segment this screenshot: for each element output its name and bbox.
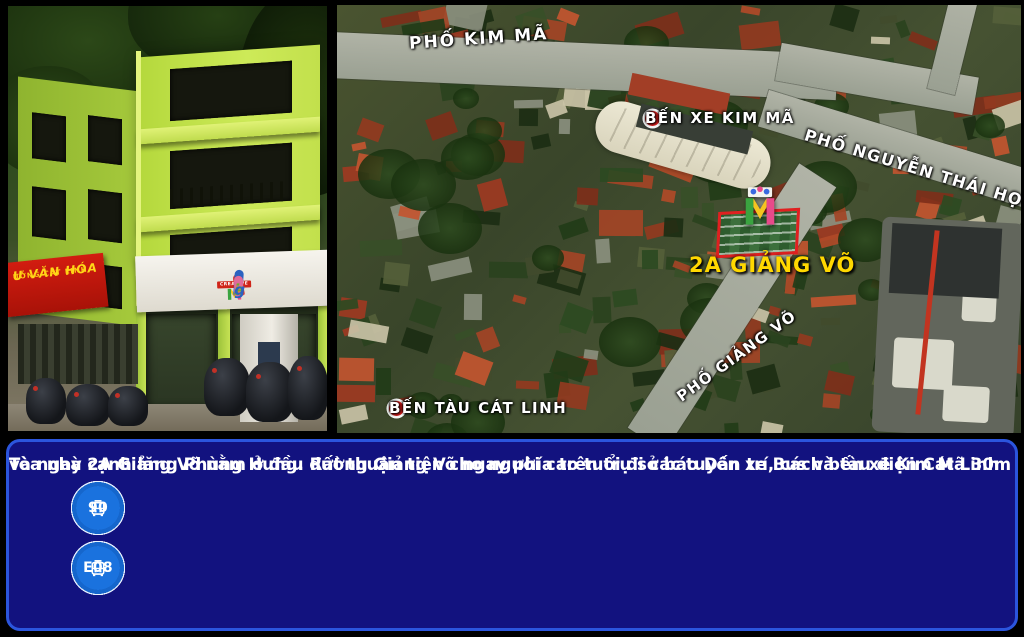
bus-route-number: 90 [88, 501, 108, 516]
map-texture-patch [376, 368, 391, 395]
map-texture-patch [339, 358, 374, 382]
map-texture-patch [600, 168, 643, 182]
map-texture-patch [512, 294, 526, 304]
window [170, 61, 292, 122]
satellite-map: PHỐ KIM MÃ BẾN XE KIM MÃ PHỐ NGUYỄN THÁI… [337, 5, 1021, 433]
motorbike [288, 356, 327, 420]
station-label-text: BẾN TÀU CÁT LINH [389, 399, 567, 417]
map-texture-patch [531, 133, 552, 150]
map-texture-patch [592, 297, 611, 324]
map-texture-patch [824, 370, 855, 396]
window [32, 112, 66, 162]
map-texture-patch [427, 257, 472, 282]
zigzag-letter: g [234, 281, 245, 299]
motorbike [204, 358, 250, 416]
motorbike [26, 378, 66, 424]
map-texture-patch [559, 119, 570, 134]
creative-logo-marker [738, 185, 782, 229]
red-street-sign: Ư VĂN HÓA ƯỜNG CÁT LINH [8, 253, 109, 317]
station-label-text: BẾN XE KIM MÃ [645, 109, 795, 127]
map-texture-patch [360, 239, 403, 257]
map-texture-patch [357, 118, 385, 143]
kim-ma-bus-station-label: BẾN XE KIM MÃ [645, 109, 795, 127]
map-texture-patch [408, 298, 441, 328]
map-tree-blob [532, 245, 564, 271]
map-texture-patch [545, 99, 567, 119]
cat-linh-station-label: BẾN TÀU CÁT LINH [389, 399, 567, 417]
map-texture-patch [992, 6, 1021, 27]
map-texture-patch [811, 294, 857, 307]
map-texture-patch [337, 385, 375, 402]
map-texture-patch [797, 333, 814, 347]
map-texture-patch [489, 261, 528, 278]
map-texture-patch [425, 111, 458, 140]
building-photo: Ư VĂN HÓA ƯỜNG CÁT LINH CREATIVE zigzag [8, 6, 327, 431]
map-texture-patch [348, 320, 389, 344]
map-texture-patch [518, 109, 537, 126]
map-texture-patch [822, 393, 840, 409]
balcony [138, 205, 320, 233]
map-texture-patch [584, 349, 599, 359]
motorbike [246, 362, 294, 422]
map-tree-blob [453, 88, 479, 109]
map-texture-patch [464, 294, 482, 320]
map-texture-patch [829, 5, 859, 32]
info-panel: Tòa nhà 2A Giảng Võ nằm ở đầu đường Giản… [6, 439, 1018, 631]
map-texture-patch [515, 380, 539, 389]
bus-route-badge-e08: E08 [71, 541, 125, 595]
window [88, 115, 122, 165]
map-texture-patch [908, 31, 938, 51]
map-texture-patch [595, 239, 611, 264]
map-tree-blob [975, 114, 1006, 139]
map-texture-patch [681, 187, 699, 208]
description-line-2: và ngay cạnh lăng Phùng Hưng. Rất thuận … [9, 452, 999, 477]
map-tree-blob [599, 317, 661, 367]
window [88, 189, 122, 243]
creative-m-icon [738, 185, 782, 229]
map-texture-patch [599, 210, 643, 236]
map-texture-patch [383, 262, 411, 287]
map-texture-patch [514, 99, 543, 108]
iron-fence [18, 324, 138, 384]
construction-site [871, 216, 1021, 433]
map-texture-patch [724, 422, 739, 433]
address-label: 2A GIẢNG VÕ [689, 253, 855, 277]
map-texture-patch [339, 404, 369, 424]
window [32, 186, 66, 240]
construction-dark-roof [889, 223, 1003, 299]
map-texture-patch [476, 327, 500, 353]
map-texture-patch [477, 178, 508, 211]
map-texture-patch [741, 5, 761, 16]
map-texture-patch [739, 20, 782, 50]
map-texture-patch [661, 189, 676, 203]
balcony [138, 117, 320, 145]
map-texture-patch [759, 421, 783, 433]
map-texture-patch [576, 188, 598, 206]
bus-route-number: E08 [83, 561, 113, 576]
description-text: Tòa nhà 2A Giảng Võ nằm ở đầu đường Giản… [9, 452, 1021, 508]
storefront-signboard: CREATIVE zigzag [135, 250, 327, 313]
map-texture-patch [455, 328, 476, 342]
map-texture-patch [821, 318, 840, 325]
map-texture-patch [871, 37, 890, 45]
map-texture-patch [746, 363, 781, 394]
bus-route-badge-90: 90 [71, 481, 125, 535]
map-texture-patch [351, 142, 366, 152]
map-texture-patch [613, 288, 639, 306]
map-texture-patch [642, 250, 658, 269]
infographic-canvas: Ư VĂN HÓA ƯỜNG CÁT LINH CREATIVE zigzag [0, 0, 1024, 637]
map-texture-patch [991, 136, 1010, 157]
construction-structure [942, 385, 990, 423]
motorbike [66, 384, 110, 426]
map-texture-patch [401, 327, 433, 354]
map-texture-patch [663, 218, 683, 238]
building-facade-right [138, 45, 320, 268]
map-tree-blob [441, 137, 495, 180]
map-texture-patch [558, 217, 589, 240]
motorbike [108, 386, 148, 426]
